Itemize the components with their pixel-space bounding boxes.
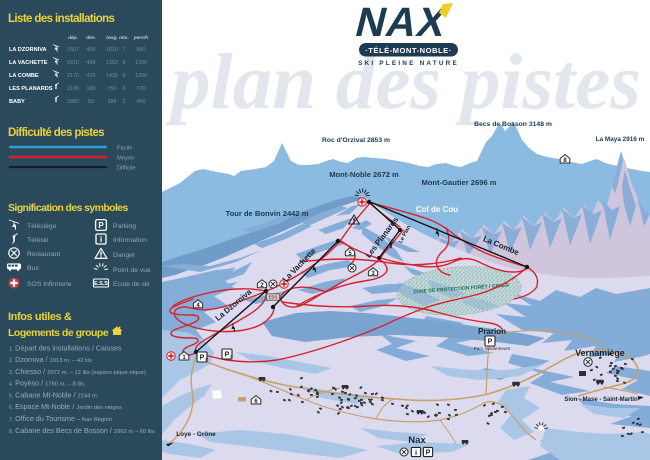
svg-text:P: P	[225, 352, 230, 359]
svg-text:6: 6	[123, 86, 126, 92]
svg-text:Mont-Gautier 2696 m: Mont-Gautier 2696 m	[421, 178, 496, 187]
svg-text:E.S.S: E.S.S	[94, 281, 108, 287]
svg-text:9: 9	[123, 60, 126, 66]
svg-text:860: 860	[137, 47, 146, 53]
svg-text:Mont-Noble 2672 m: Mont-Noble 2672 m	[329, 170, 399, 179]
svg-text:Information: Information	[113, 237, 147, 244]
svg-text:405: 405	[87, 47, 96, 53]
svg-text:Danger: Danger	[113, 252, 136, 259]
svg-text:pers/h: pers/h	[133, 35, 148, 41]
svg-text:dén.: dén.	[86, 35, 96, 41]
svg-text:Nax: Nax	[408, 435, 426, 446]
svg-text:Vernamiège: Vernamiège	[575, 348, 624, 358]
svg-text:Ecole de ski: Ecole de ski	[113, 281, 150, 288]
svg-text:La Maya 2916 m: La Maya 2916 m	[596, 136, 645, 143]
svg-text:7: 7	[123, 47, 126, 53]
svg-text:LA COMBE: LA COMBE	[9, 73, 39, 79]
svg-text:1200: 1200	[135, 60, 147, 66]
svg-text:2: 2	[123, 99, 126, 105]
svg-text:Tour de Bonvin 2442 m: Tour de Bonvin 2442 m	[226, 209, 309, 218]
svg-text:1880: 1880	[67, 99, 79, 105]
svg-text:i: i	[415, 448, 417, 457]
svg-text:·TÉLÉ-MONT-NOBLE·: ·TÉLÉ-MONT-NOBLE·	[365, 46, 452, 55]
svg-text:Becs de Bosson 3148 m: Becs de Bosson 3148 m	[474, 121, 552, 128]
svg-text:P: P	[98, 221, 104, 230]
svg-text:9: 9	[123, 73, 126, 79]
svg-text:Loye - Grône: Loye - Grône	[176, 431, 216, 438]
svg-text:i: i	[100, 234, 102, 244]
svg-text:Liste des installations: Liste des installations	[8, 13, 115, 25]
svg-text:1430: 1430	[106, 73, 118, 79]
svg-text:1010: 1010	[106, 47, 118, 53]
svg-text:1810: 1810	[67, 60, 79, 66]
svg-text:P: P	[488, 339, 493, 346]
svg-text:Télésiège: Télésiège	[27, 223, 57, 230]
svg-text:P: P	[200, 355, 205, 362]
svg-text:Téléski: Téléski	[27, 237, 49, 244]
svg-text:180: 180	[87, 86, 96, 92]
svg-text:50: 50	[88, 99, 94, 105]
svg-text:Point de vue: Point de vue	[113, 267, 151, 274]
svg-text:SOS Infirmerie: SOS Infirmerie	[27, 281, 72, 288]
svg-text:Moyen: Moyen	[117, 156, 134, 162]
svg-text:Roc d'Orzival 2853 m: Roc d'Orzival 2853 m	[322, 137, 390, 144]
svg-text:Parc randonneurs: Parc randonneurs	[474, 346, 511, 351]
svg-text:2170: 2170	[67, 73, 79, 79]
svg-text:1352: 1352	[106, 60, 118, 66]
svg-text:P: P	[426, 450, 431, 457]
svg-text:2196: 2196	[67, 86, 79, 92]
svg-text:Prarion: Prarion	[478, 327, 506, 336]
svg-text:468: 468	[87, 60, 96, 66]
svg-text:1200: 1200	[135, 73, 147, 79]
svg-text:Difficile: Difficile	[117, 166, 136, 172]
svg-text:Signification des symboles: Signification des symboles	[8, 202, 129, 214]
svg-text:NAX: NAX	[351, 0, 452, 45]
svg-text:Infos utiles &: Infos utiles &	[8, 311, 72, 323]
svg-text:1507: 1507	[67, 47, 79, 53]
svg-text:Restaurant: Restaurant	[27, 251, 60, 258]
svg-text:400: 400	[137, 99, 146, 105]
svg-text:SKI PLEINE NATURE: SKI PLEINE NATURE	[358, 60, 459, 67]
svg-text:470: 470	[87, 73, 96, 79]
svg-text:LA DZORNIVA: LA DZORNIVA	[9, 47, 47, 53]
svg-text:LA VACHETTE: LA VACHETTE	[9, 60, 48, 66]
svg-text:188: 188	[108, 99, 117, 105]
svg-text:nbs.: nbs.	[119, 35, 129, 41]
svg-text:Sion - Mase - Saint-Martin: Sion - Mase - Saint-Martin	[564, 397, 638, 403]
svg-text:Facile: Facile	[117, 146, 132, 152]
svg-text:LES PLANARDS: LES PLANARDS	[9, 86, 53, 92]
svg-text:Bus: Bus	[27, 265, 39, 272]
svg-text:750: 750	[108, 86, 117, 92]
svg-text:long.: long.	[106, 35, 117, 41]
svg-text:Logements de groupe: Logements de groupe	[8, 327, 109, 339]
svg-text:1. Départ des installations /: 1. Départ des installations / Caisses	[9, 344, 122, 353]
svg-text:Difficulté des pistes: Difficulté des pistes	[8, 127, 104, 139]
svg-text:Parking: Parking	[113, 223, 136, 230]
svg-text:dép.: dép.	[68, 35, 78, 41]
svg-text:Col de Cou: Col de Cou	[416, 205, 458, 214]
svg-text:BABY: BABY	[9, 99, 25, 105]
svg-text:ESS: ESS	[269, 295, 278, 300]
svg-text:720: 720	[137, 86, 146, 92]
